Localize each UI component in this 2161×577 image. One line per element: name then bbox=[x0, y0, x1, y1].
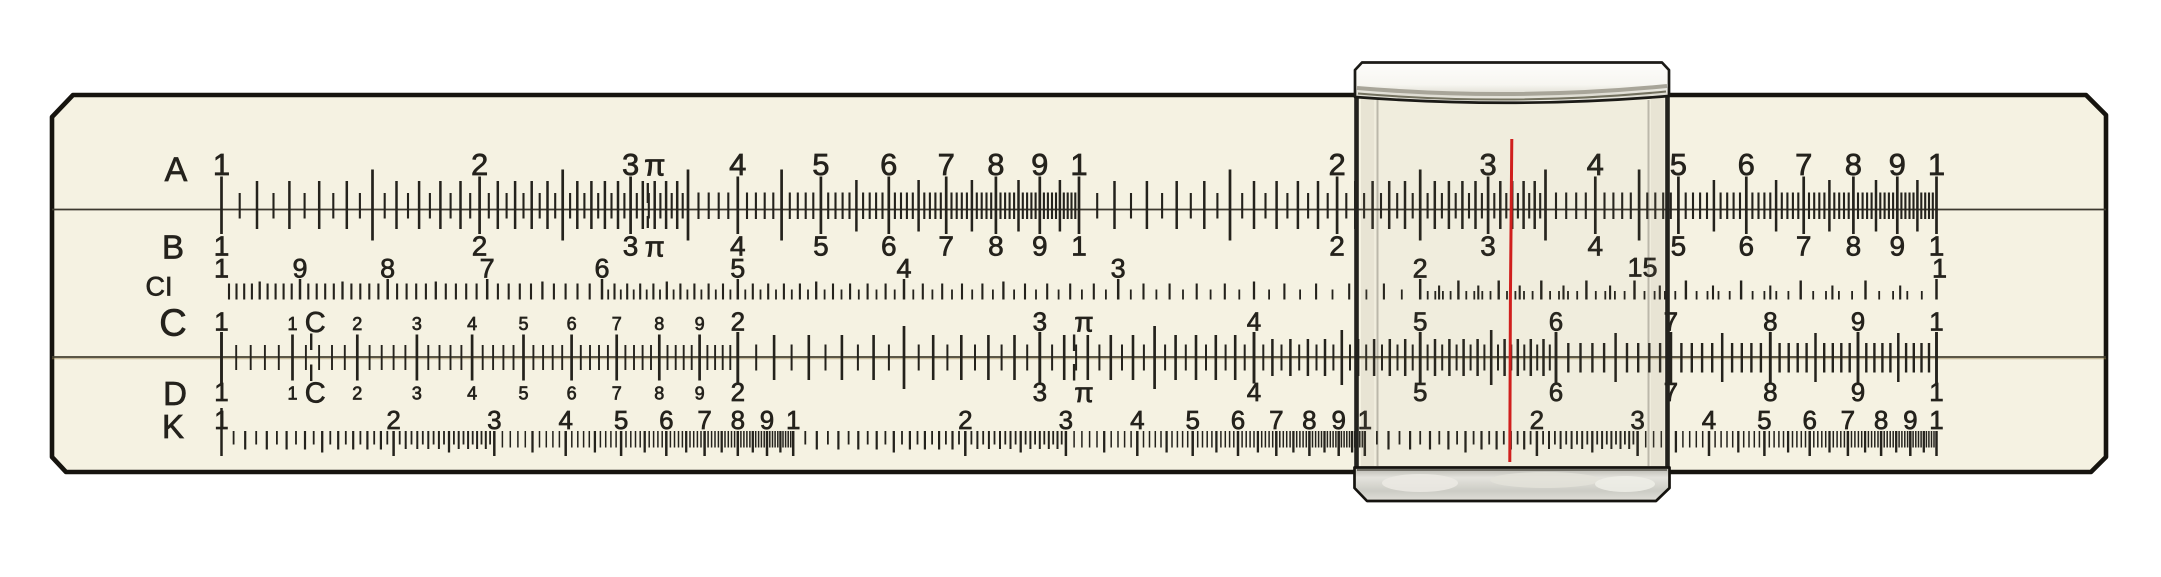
svg-text:9: 9 bbox=[1031, 147, 1048, 182]
svg-text:9: 9 bbox=[1903, 405, 1917, 435]
svg-text:6: 6 bbox=[1739, 230, 1755, 261]
svg-text:8: 8 bbox=[1763, 377, 1777, 407]
svg-text:8: 8 bbox=[654, 314, 664, 334]
svg-text:1: 1 bbox=[1929, 405, 1943, 435]
svg-text:9: 9 bbox=[1331, 405, 1345, 435]
svg-text:π: π bbox=[645, 231, 665, 263]
svg-text:1: 1 bbox=[1928, 147, 1945, 182]
svg-text:6: 6 bbox=[1738, 147, 1755, 182]
svg-text:1: 1 bbox=[214, 254, 229, 284]
svg-text:4: 4 bbox=[1247, 377, 1261, 407]
svg-text:6: 6 bbox=[567, 383, 577, 403]
svg-text:5: 5 bbox=[1757, 405, 1771, 435]
svg-text:4: 4 bbox=[1130, 405, 1144, 435]
svg-text:6: 6 bbox=[1231, 405, 1245, 435]
svg-text:4: 4 bbox=[1702, 405, 1716, 435]
svg-text:6: 6 bbox=[1802, 405, 1816, 435]
svg-text:3: 3 bbox=[1033, 307, 1047, 337]
svg-text:9: 9 bbox=[292, 254, 307, 284]
svg-text:1: 1 bbox=[287, 383, 297, 403]
svg-text:9: 9 bbox=[760, 405, 774, 435]
svg-text:2: 2 bbox=[1328, 147, 1345, 182]
svg-text:8: 8 bbox=[1846, 230, 1862, 261]
svg-text:7: 7 bbox=[612, 314, 622, 334]
svg-text:8: 8 bbox=[654, 383, 664, 403]
svg-text:1: 1 bbox=[214, 377, 228, 407]
svg-text:4: 4 bbox=[558, 405, 572, 435]
svg-text:2: 2 bbox=[731, 307, 745, 337]
svg-text:9: 9 bbox=[695, 383, 705, 403]
svg-text:9: 9 bbox=[1032, 230, 1048, 261]
svg-text:5: 5 bbox=[614, 405, 628, 435]
svg-text:8: 8 bbox=[1874, 405, 1888, 435]
svg-text:9: 9 bbox=[1851, 307, 1865, 337]
svg-text:5: 5 bbox=[730, 254, 745, 284]
svg-text:3: 3 bbox=[412, 314, 422, 334]
svg-text:7: 7 bbox=[480, 254, 495, 284]
svg-text:3: 3 bbox=[1111, 254, 1126, 284]
svg-text:3: 3 bbox=[412, 383, 422, 403]
svg-text:1: 1 bbox=[1932, 254, 1947, 284]
svg-text:K: K bbox=[162, 408, 184, 445]
svg-text:6: 6 bbox=[881, 230, 897, 261]
svg-text:6: 6 bbox=[659, 405, 673, 435]
svg-text:3: 3 bbox=[1033, 377, 1047, 407]
svg-text:2: 2 bbox=[731, 377, 745, 407]
svg-text:5: 5 bbox=[812, 147, 829, 182]
svg-text:2: 2 bbox=[471, 147, 488, 182]
svg-text:A: A bbox=[165, 151, 188, 189]
svg-text:π: π bbox=[1074, 377, 1093, 408]
svg-text:2: 2 bbox=[352, 383, 362, 403]
svg-text:6: 6 bbox=[594, 254, 609, 284]
svg-text:4: 4 bbox=[1247, 307, 1261, 337]
svg-text:7: 7 bbox=[697, 405, 711, 435]
svg-text:1: 1 bbox=[1071, 230, 1087, 261]
svg-text:1: 1 bbox=[1929, 307, 1943, 337]
svg-text:4: 4 bbox=[729, 147, 746, 182]
svg-text:7: 7 bbox=[938, 147, 955, 182]
svg-text:C: C bbox=[159, 303, 186, 345]
svg-text:5: 5 bbox=[813, 230, 829, 261]
svg-text:9: 9 bbox=[1889, 147, 1906, 182]
svg-text:6: 6 bbox=[880, 147, 897, 182]
svg-text:1: 1 bbox=[214, 405, 228, 435]
svg-text:1: 1 bbox=[213, 147, 230, 182]
svg-text:5: 5 bbox=[1671, 230, 1687, 261]
svg-text:CI: CI bbox=[146, 272, 173, 302]
svg-text:D: D bbox=[163, 375, 187, 412]
svg-text:6: 6 bbox=[567, 314, 577, 334]
svg-text:7: 7 bbox=[1796, 230, 1812, 261]
svg-text:5: 5 bbox=[518, 314, 528, 334]
svg-text:3: 3 bbox=[1059, 405, 1073, 435]
svg-text:1: 1 bbox=[287, 314, 297, 334]
svg-text:3: 3 bbox=[622, 147, 639, 182]
svg-text:4: 4 bbox=[896, 254, 911, 284]
svg-text:7: 7 bbox=[1269, 405, 1283, 435]
svg-text:3: 3 bbox=[623, 230, 639, 261]
svg-text:5: 5 bbox=[1670, 147, 1687, 182]
svg-text:5: 5 bbox=[1185, 405, 1199, 435]
svg-text:C: C bbox=[305, 377, 326, 409]
svg-text:5: 5 bbox=[518, 383, 528, 403]
svg-text:2: 2 bbox=[1329, 230, 1345, 261]
svg-text:9: 9 bbox=[695, 314, 705, 334]
svg-text:2: 2 bbox=[386, 405, 400, 435]
svg-text:8: 8 bbox=[731, 405, 745, 435]
svg-text:8: 8 bbox=[1302, 405, 1316, 435]
svg-text:7: 7 bbox=[938, 230, 954, 261]
svg-text:2: 2 bbox=[958, 405, 972, 435]
svg-text:π: π bbox=[1074, 306, 1093, 337]
svg-text:7: 7 bbox=[612, 383, 622, 403]
svg-text:4: 4 bbox=[467, 314, 477, 334]
svg-text:7: 7 bbox=[1795, 147, 1812, 182]
svg-text:3: 3 bbox=[487, 405, 501, 435]
svg-text:8: 8 bbox=[380, 254, 395, 284]
svg-text:π: π bbox=[644, 148, 665, 183]
svg-text:7: 7 bbox=[1841, 405, 1855, 435]
svg-text:8: 8 bbox=[1763, 307, 1777, 337]
svg-text:B: B bbox=[162, 229, 184, 266]
svg-text:1: 1 bbox=[214, 307, 228, 337]
svg-text:8: 8 bbox=[987, 147, 1004, 182]
svg-text:9: 9 bbox=[1890, 230, 1906, 261]
svg-text:4: 4 bbox=[467, 383, 477, 403]
svg-text:1: 1 bbox=[1070, 147, 1087, 182]
svg-text:C: C bbox=[305, 307, 326, 339]
svg-text:1: 1 bbox=[786, 405, 800, 435]
svg-text:1: 1 bbox=[1929, 377, 1943, 407]
svg-text:9: 9 bbox=[1851, 377, 1865, 407]
svg-text:8: 8 bbox=[1845, 147, 1862, 182]
svg-text:8: 8 bbox=[988, 230, 1004, 261]
svg-text:2: 2 bbox=[352, 314, 362, 334]
